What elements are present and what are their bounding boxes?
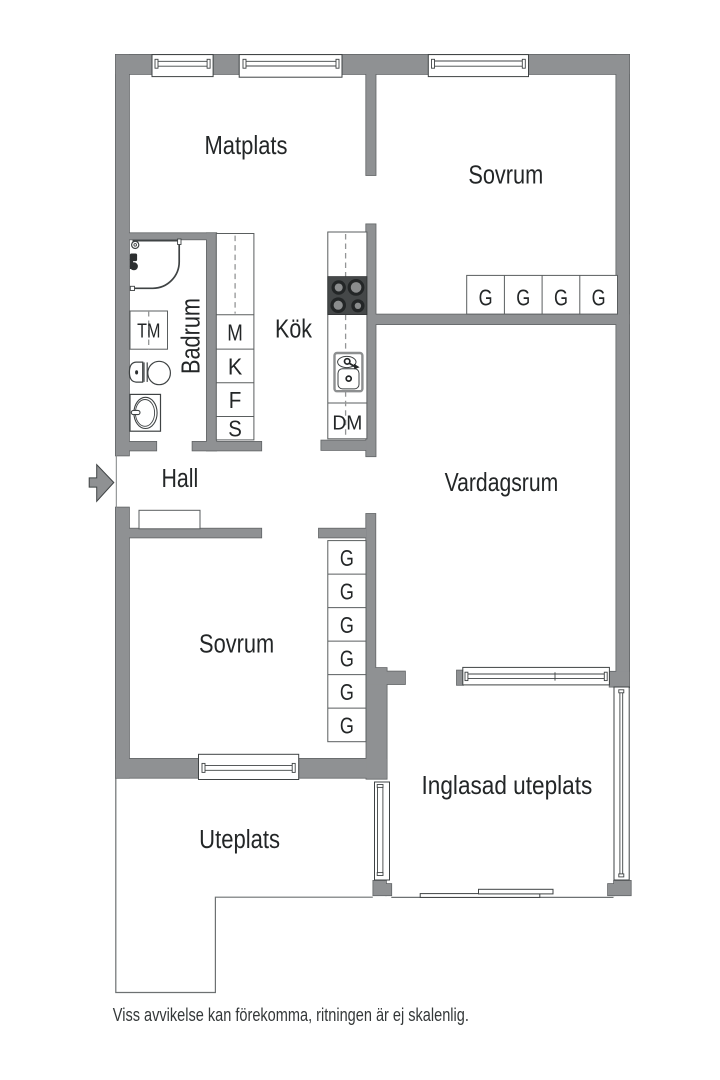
svg-text:DM: DM (332, 412, 362, 434)
svg-text:G: G (340, 546, 354, 572)
svg-text:Badrum: Badrum (177, 298, 206, 374)
svg-text:F: F (229, 387, 242, 413)
svg-text:Uteplats: Uteplats (199, 825, 280, 854)
svg-text:G: G (340, 613, 354, 639)
svg-text:G: G (516, 285, 530, 311)
svg-text:TM: TM (137, 320, 160, 342)
svg-text:G: G (340, 646, 354, 672)
svg-text:Vardagsrum: Vardagsrum (445, 469, 559, 498)
svg-text:Sovrum: Sovrum (468, 161, 543, 190)
svg-text:Kök: Kök (275, 315, 312, 344)
svg-text:M: M (227, 320, 243, 345)
svg-text:Sovrum: Sovrum (199, 630, 274, 659)
svg-text:G: G (479, 285, 493, 311)
svg-text:S: S (228, 415, 242, 442)
svg-text:G: G (340, 713, 354, 739)
svg-text:Inglasad uteplats: Inglasad uteplats (422, 771, 593, 800)
svg-text:G: G (592, 285, 606, 311)
svg-text:Viss avvikelse kan förekomma,: Viss avvikelse kan förekomma, ritningen … (113, 1006, 469, 1026)
svg-text:Matplats: Matplats (205, 132, 288, 161)
svg-text:G: G (340, 579, 354, 605)
svg-text:G: G (340, 680, 354, 706)
svg-text:K: K (228, 354, 242, 380)
svg-text:Hall: Hall (162, 464, 199, 494)
svg-text:G: G (554, 285, 568, 311)
